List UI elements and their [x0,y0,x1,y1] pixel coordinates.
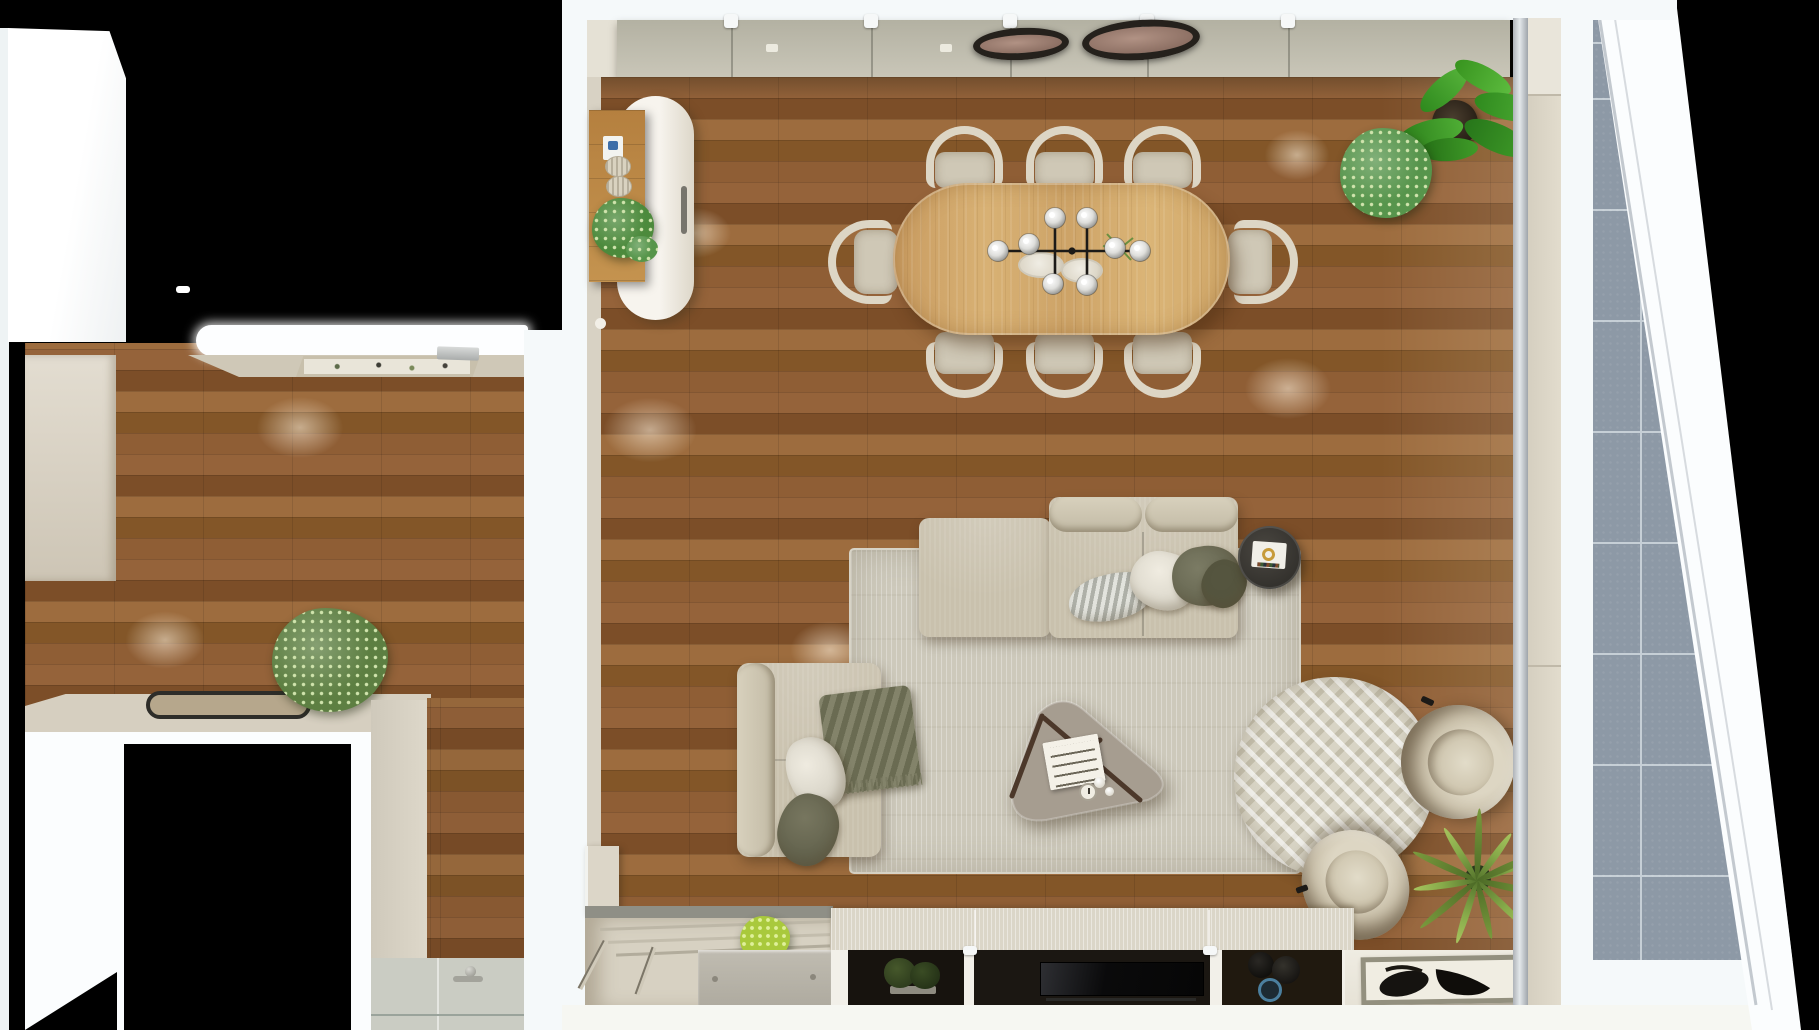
ottoman [919,518,1051,637]
steel-shelf-edge [437,346,479,360]
outer-wall-sliver [0,28,9,1030]
dining-chair [926,126,1003,188]
step-edge [585,906,833,918]
left-wall-panel [8,28,126,342]
media-bench-top [831,908,1354,952]
dining-chair [1124,330,1201,398]
diagonal-parapet [1560,0,1819,1030]
media-cell-vases [1222,950,1342,1007]
cabinet-knob [810,974,816,980]
light-pool [240,385,360,470]
dining-chair [1026,330,1103,398]
dining-chair-end [828,220,900,304]
cabinet-knob [712,976,718,982]
top-wall-left-seg [587,20,617,77]
linear-chandelier [985,198,1160,303]
console-slot [681,186,687,234]
shower-drain [453,976,483,982]
shelf-jar [605,156,631,177]
floorplan-render [0,0,1819,1030]
light-pool [110,600,220,680]
side-table-book [1251,541,1287,569]
shelf-jar [606,176,632,197]
wall-clip [1003,14,1017,28]
media-cell-tv [974,950,1210,1007]
tv-screen [1040,962,1204,996]
curtain-panel [1528,18,1561,1007]
bath-wood-wall [427,698,526,966]
wall-knob [595,318,606,329]
sofa-backrest [1049,497,1142,532]
sofa-backrest [1145,497,1238,532]
art-tray [1361,955,1522,1006]
dining-chair [1026,126,1103,188]
shower-floor [371,958,526,1030]
wall-floor-shadow [600,77,1513,101]
cup [1105,787,1114,796]
shower-knob [465,966,476,977]
kitchen-tall-cabinet [25,355,116,581]
dining-chair [1124,126,1201,188]
shower-glass-line [371,1014,526,1016]
island-opening [124,744,351,1030]
wall-clip [1281,14,1295,28]
dividing-wall-lower [524,330,564,1030]
vase-blue-ring [1258,978,1282,1002]
wall-notch [176,286,190,293]
wall-clip [864,14,878,28]
half-wall-corner [585,846,619,914]
window-track [1513,18,1528,1007]
wall-clip [724,14,738,28]
cup [1094,777,1105,788]
media-cell-moss [848,950,964,1007]
dining-chair [926,330,1003,398]
wall-tab [940,44,952,52]
dining-chair-end [1226,220,1298,304]
loveseat-backrest [737,663,775,857]
wall-tab [766,44,778,52]
balcony-top-white [1561,0,1677,20]
vase [1248,952,1274,978]
